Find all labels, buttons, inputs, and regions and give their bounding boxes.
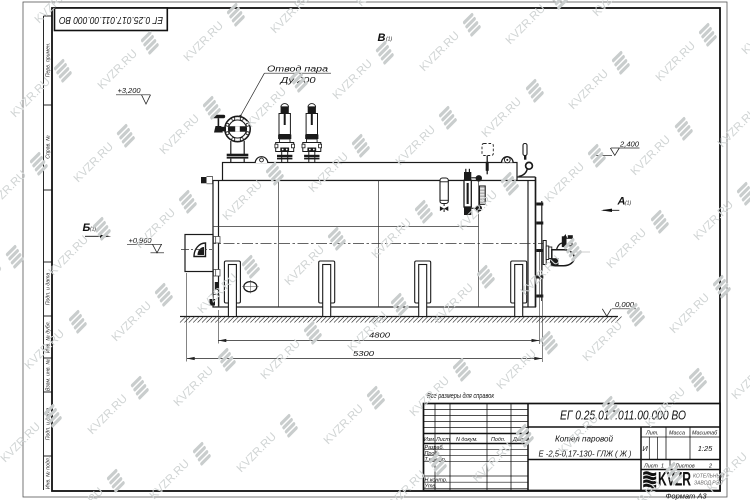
svg-text:Подп. и дата: Подп. и дата [46, 273, 52, 306]
svg-text:Взам. инв. №: Взам. инв. № [46, 359, 52, 391]
svg-text:+3,200: +3,200 [118, 86, 142, 95]
svg-text:Масса: Масса [669, 431, 685, 437]
svg-text:Е -2,5-0,17-130- ГЛЖ ( Ж ): Е -2,5-0,17-130- ГЛЖ ( Ж ) [539, 450, 632, 459]
svg-text:Изм.: Изм. [424, 437, 436, 443]
svg-text:Справ. №: Справ. № [46, 135, 52, 159]
svg-text:Н.контр.: Н.контр. [425, 478, 448, 484]
svg-text:N докум.: N докум. [456, 437, 478, 443]
svg-text:1:25: 1:25 [698, 444, 713, 453]
svg-text:Перв. примен.: Перв. примен. [46, 43, 52, 77]
svg-text:Масштаб: Масштаб [692, 431, 718, 437]
svg-text:Лит.: Лит. [645, 431, 659, 437]
svg-text:Инв. № подл.: Инв. № подл. [46, 457, 52, 489]
svg-text:Формат А3: Формат А3 [665, 492, 707, 500]
svg-text:ЕГ 0.25.017.011.00.000 ВО: ЕГ 0.25.017.011.00.000 ВО [59, 14, 163, 25]
svg-text:2: 2 [708, 463, 712, 469]
svg-text:Утв.: Утв. [424, 484, 437, 490]
svg-text:Лист: Лист [643, 463, 658, 469]
svg-text:2,400: 2,400 [619, 140, 640, 149]
svg-text:И: И [642, 444, 648, 453]
svg-text:1: 1 [661, 463, 664, 469]
svg-text:(1): (1) [625, 201, 631, 207]
svg-text:(1): (1) [386, 37, 392, 43]
svg-text:Подп.: Подп. [491, 437, 505, 443]
svg-text:Лист: Лист [435, 437, 450, 443]
